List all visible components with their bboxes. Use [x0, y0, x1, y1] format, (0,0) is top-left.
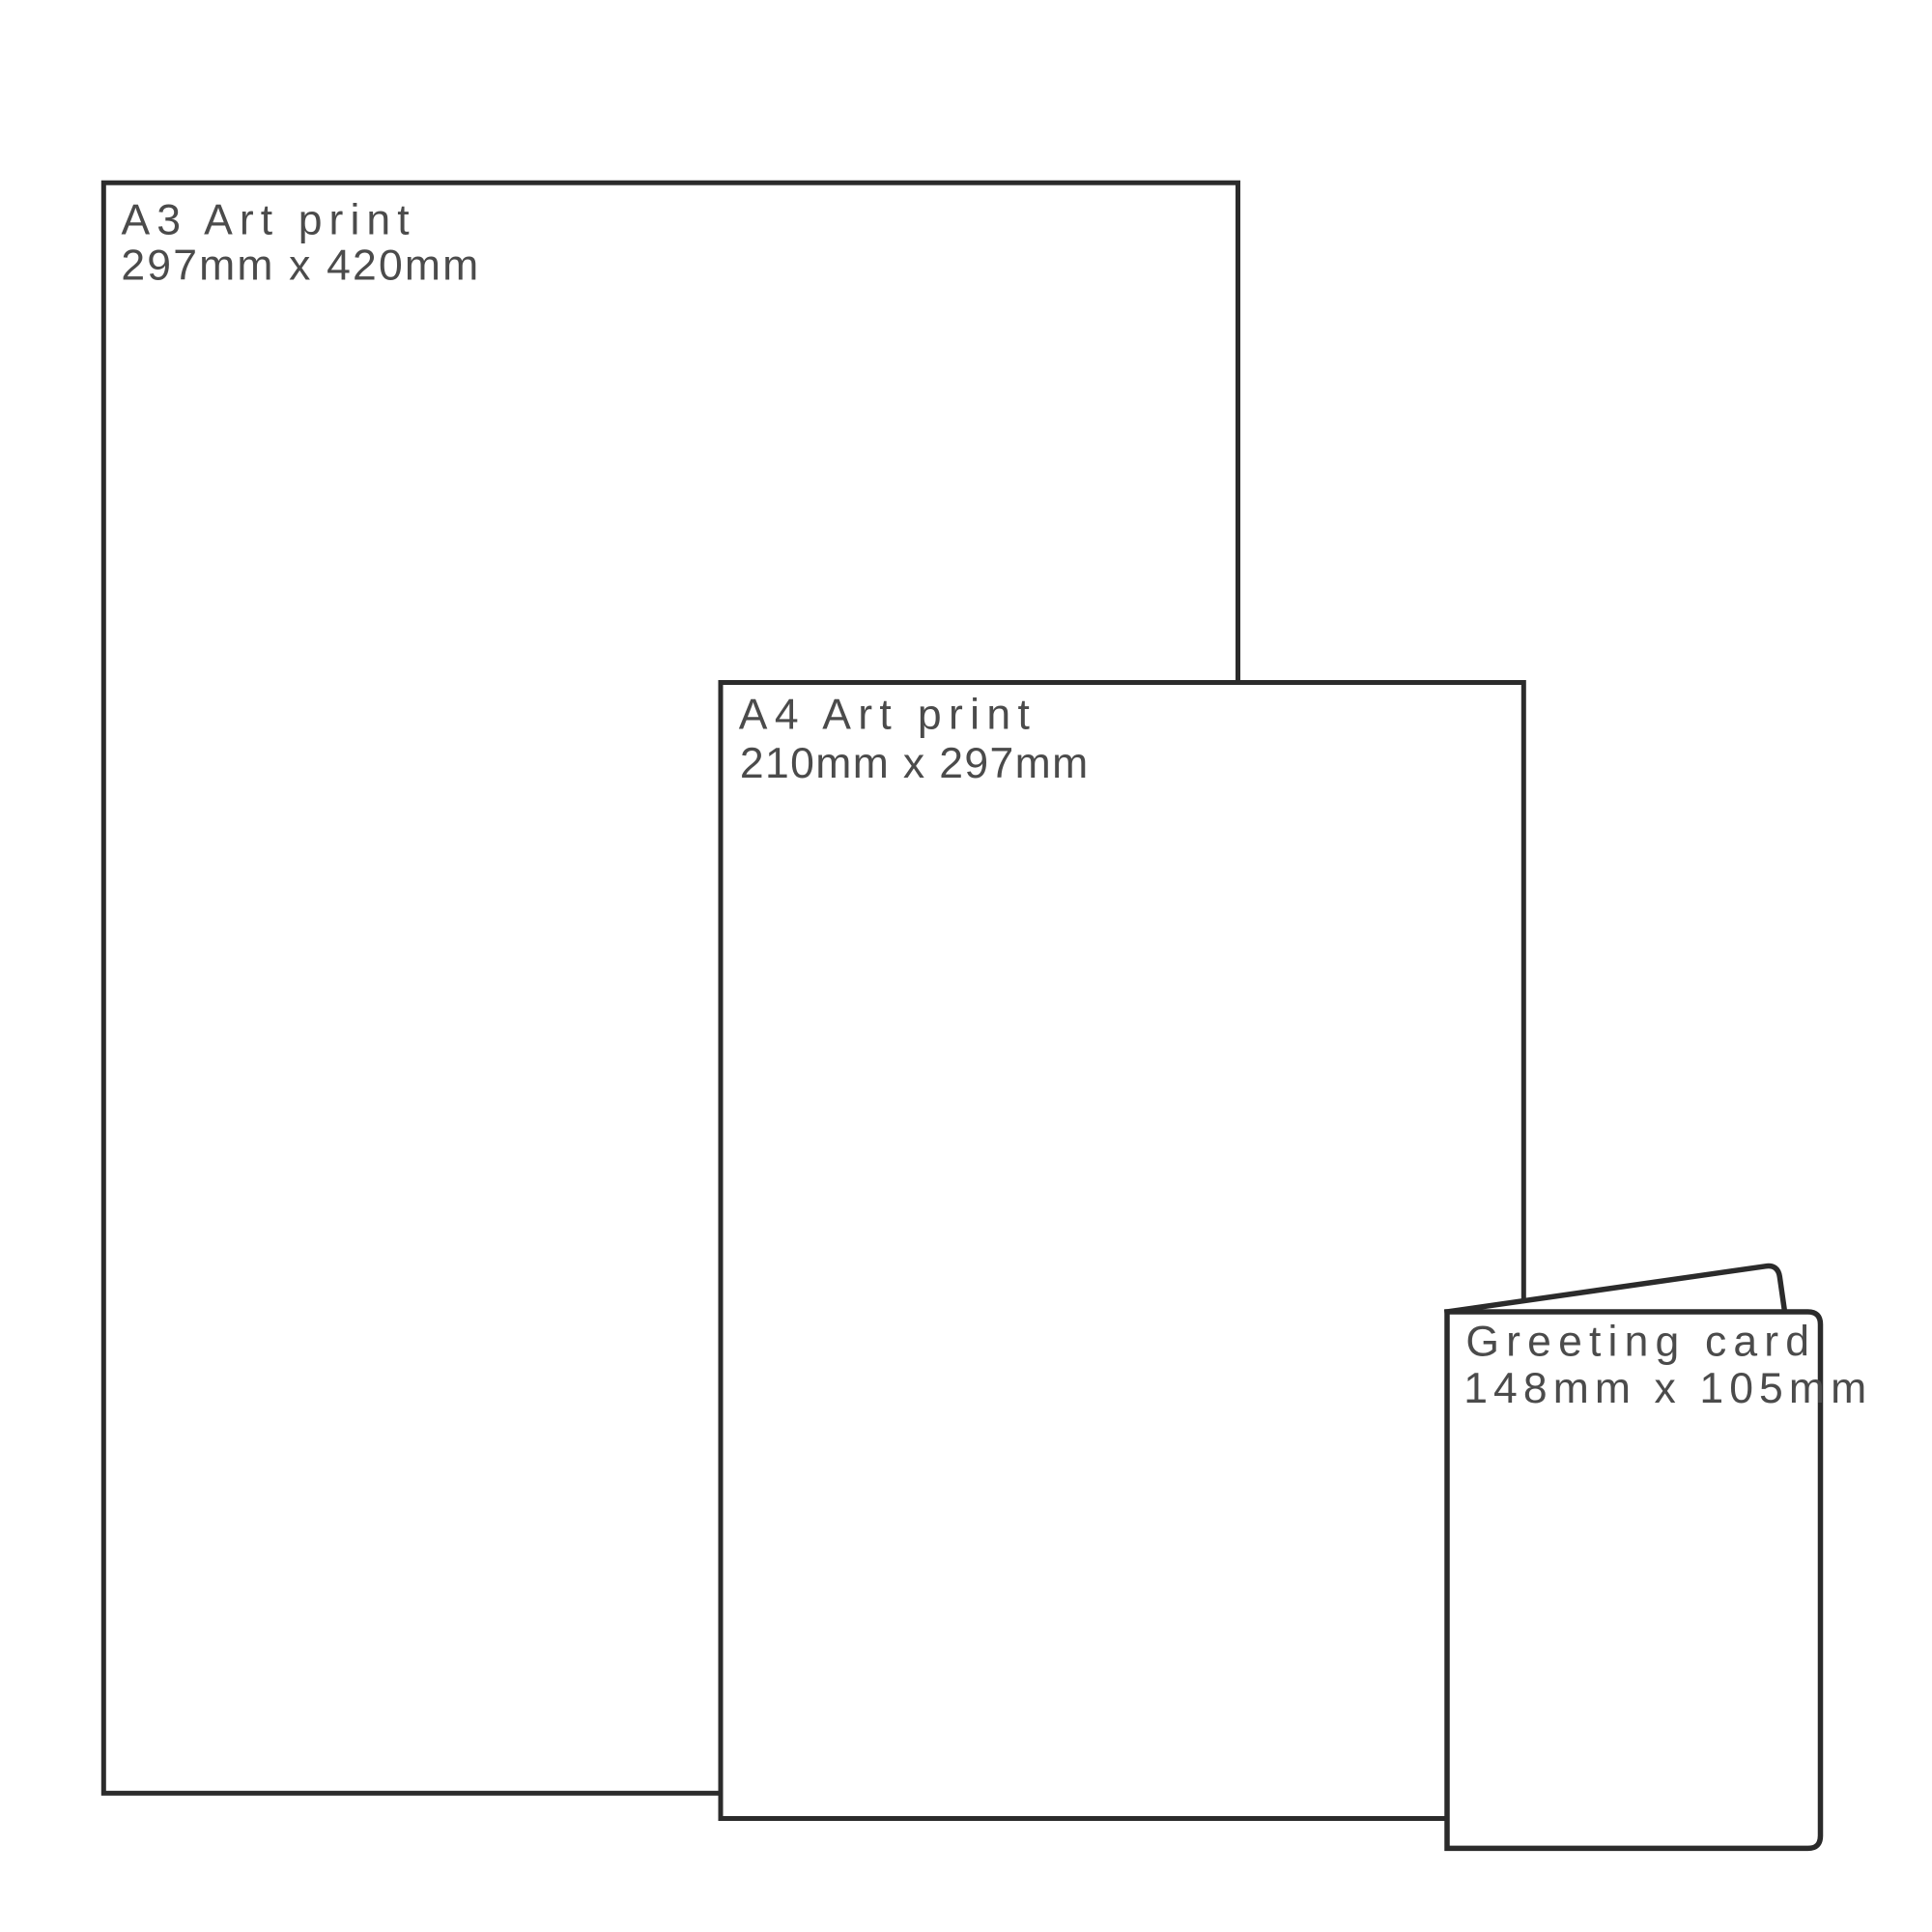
svg-text:A3 Art print: A3 Art print: [122, 197, 416, 244]
svg-text:A4 Art print: A4 Art print: [739, 692, 1037, 739]
svg-text:210mm x 297mm: 210mm x 297mm: [740, 740, 1090, 787]
svg-text:297mm x 420mm: 297mm x 420mm: [121, 242, 480, 290]
svg-text:Greeting card: Greeting card: [1465, 1319, 1816, 1366]
svg-text:148mm x 105mm: 148mm x 105mm: [1463, 1365, 1872, 1412]
